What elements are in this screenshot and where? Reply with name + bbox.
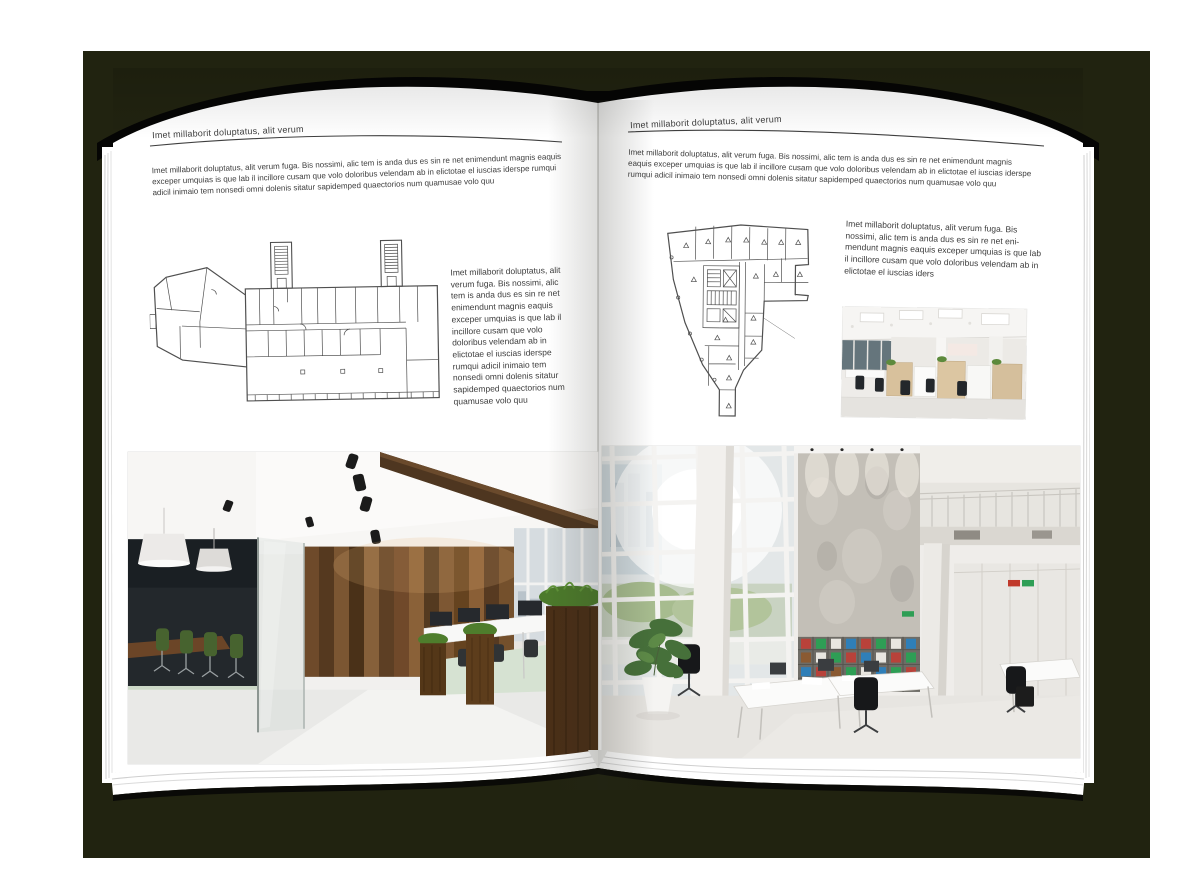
left-floor-plan bbox=[148, 225, 451, 430]
magazine-mockup-scene: Imet millaborit doluptatus, alit verum I… bbox=[0, 0, 1200, 891]
left-office-photo bbox=[128, 452, 598, 764]
exit-sign bbox=[1022, 580, 1034, 586]
fire-sign bbox=[1008, 580, 1020, 586]
right-office-photo bbox=[602, 446, 1080, 758]
right-page-side-text: Imet millaborit doluptatus, alit verum f… bbox=[844, 219, 1046, 285]
right-header-rule bbox=[626, 126, 1046, 150]
right-floor-plan bbox=[644, 217, 836, 424]
right-small-office-photo bbox=[841, 307, 1027, 420]
left-page-side-text: Imet millaborit doluptatus, alit verum f… bbox=[450, 265, 577, 409]
left-header-rule bbox=[148, 131, 564, 149]
